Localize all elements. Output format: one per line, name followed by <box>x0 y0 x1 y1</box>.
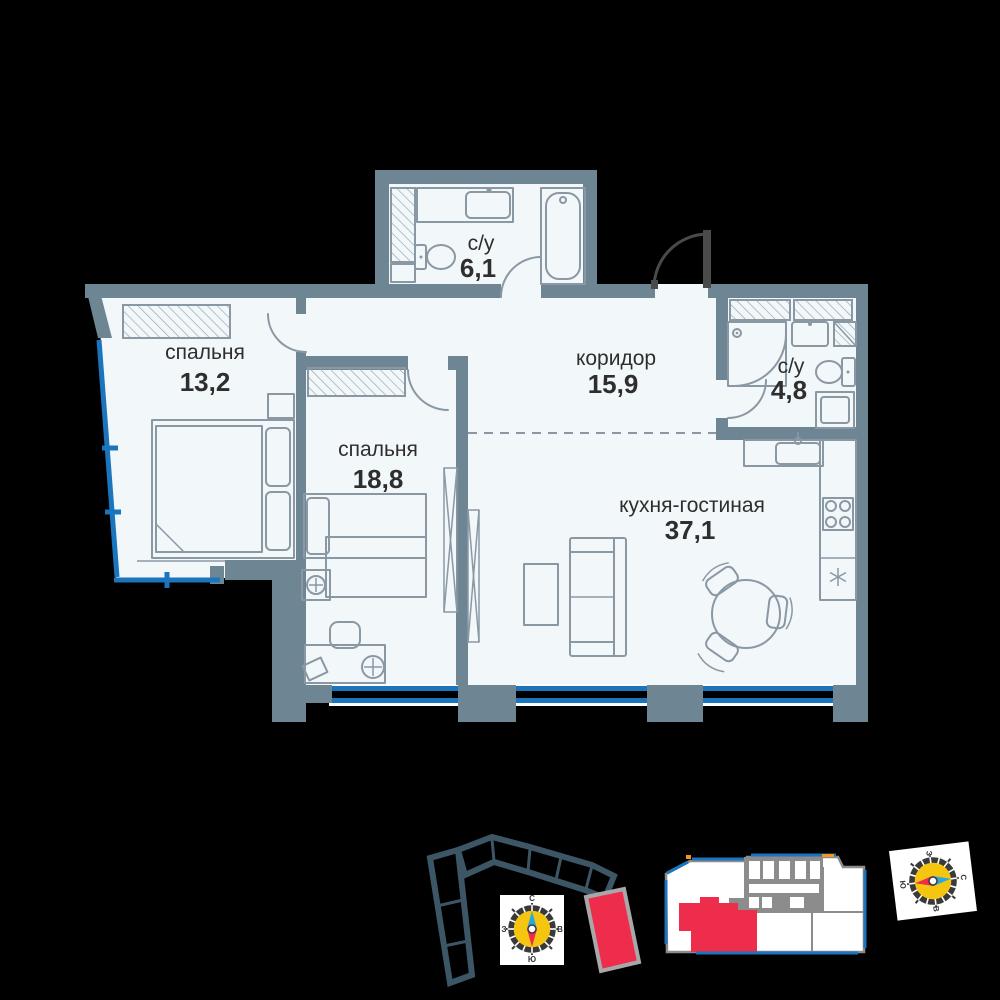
compass-south-label: Ю <box>528 955 536 964</box>
compass-rose-icon <box>506 903 558 955</box>
window-2 <box>513 684 650 706</box>
duct-closet-icon <box>794 300 852 320</box>
bathroom-top-area: 6,1 <box>460 253 496 283</box>
window-3 <box>700 684 836 706</box>
highlighted-building <box>586 889 639 971</box>
compass-1: С Ю З В <box>500 894 564 965</box>
bathroom-small-area: 4,8 <box>771 375 807 405</box>
bedroom-large-label: спальня <box>338 438 418 461</box>
bedroom-small-area: 13,2 <box>180 367 231 397</box>
corridor-label: коридор <box>576 347 656 370</box>
kitchen-living-label: кухня-гостиная <box>619 494 765 517</box>
kitchen-living-area: 37,1 <box>665 515 716 545</box>
compass-north-label: С <box>529 894 535 903</box>
floor-plan-page: спальня 13,2 спальня 18,8 с/у 6,1 коридо… <box>0 0 1000 1000</box>
laundry-column <box>391 188 415 262</box>
wardrobe-icon <box>308 368 405 396</box>
corridor-area: 15,9 <box>588 369 639 399</box>
apartment-floor-plan: спальня 13,2 спальня 18,8 с/у 6,1 коридо… <box>0 0 1000 1000</box>
floorplate-mini <box>666 854 865 953</box>
bedroom-small-label: спальня <box>165 341 245 364</box>
compass-west-label: З <box>501 925 506 934</box>
bedroom-large-area: 18,8 <box>353 464 404 494</box>
bathroom-top-label: с/у <box>468 232 495 255</box>
compass-2: С Ю З В <box>889 841 977 920</box>
compass-south-label: Ю <box>898 880 908 889</box>
corner-cabinet-icon <box>834 322 856 346</box>
south-windows <box>329 684 836 706</box>
wardrobe-icon <box>123 305 230 338</box>
duct-closet-icon <box>730 300 790 320</box>
entrance-door <box>651 230 711 289</box>
window-1 <box>329 684 461 706</box>
compass-east-label: В <box>557 925 563 934</box>
